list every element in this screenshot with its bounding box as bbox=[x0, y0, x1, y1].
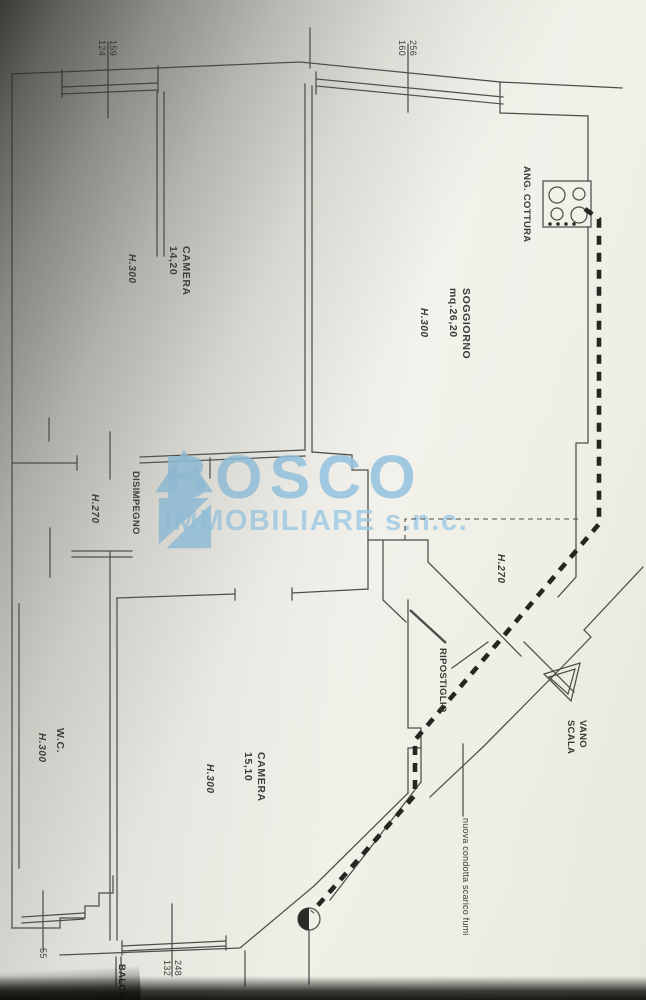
dimension-value: 248 bbox=[172, 960, 183, 976]
room-label-disimpegno: DISIMPEGNO bbox=[129, 471, 141, 535]
room-label-balcone: BALCONE bbox=[115, 964, 127, 1000]
dimension-value: 159 bbox=[107, 40, 118, 56]
height-label-soggiorno: H.300 bbox=[417, 308, 429, 338]
dimension-bottom: 248 132 bbox=[161, 960, 184, 976]
dimension-top-middle: 256 160 bbox=[396, 40, 419, 56]
room-area: 14,20 bbox=[166, 246, 179, 296]
dimension-top-left: 159 124 bbox=[96, 40, 119, 56]
dimension-bottom-left: 55 bbox=[37, 948, 48, 959]
height-label-disimpegno: H.270 bbox=[88, 494, 100, 524]
room-area: 15,10 bbox=[241, 752, 254, 802]
room-label-ripostiglio: RIPOSTIGLIO bbox=[436, 648, 448, 713]
floorplan-photo: BOSCO IMMOBILIARE s.n.c. CAMERA 14,20 H.… bbox=[0, 0, 646, 1000]
dimension-value: 160 bbox=[396, 40, 407, 56]
room-label-vano-scala: VANO SCALA bbox=[565, 720, 588, 754]
room-name: VANO bbox=[576, 720, 588, 754]
flue-note: nuova condotta scarico fumi bbox=[460, 818, 471, 935]
ceiling-height-dashed-line bbox=[405, 519, 578, 540]
room-label-ang-cottura: ANG. COTTURA bbox=[520, 166, 532, 242]
room-name: SCALA bbox=[565, 720, 577, 754]
room-name: CAMERA bbox=[179, 246, 192, 296]
height-label-camera2: H.300 bbox=[203, 764, 215, 794]
height-label-ripostiglio: H.270 bbox=[494, 554, 506, 584]
room-name: SOGGIORNO bbox=[459, 288, 472, 359]
room-label-soggiorno: SOGGIORNO mq.26,20 bbox=[446, 288, 472, 359]
height-label-wc: H.300 bbox=[35, 733, 47, 763]
dimension-value: 256 bbox=[407, 40, 418, 56]
height-label-camera1: H.300 bbox=[125, 254, 137, 284]
room-label-camera1: CAMERA 14,20 bbox=[166, 246, 192, 296]
dimension-value: 124 bbox=[96, 40, 107, 56]
room-label-wc: W.C. bbox=[53, 728, 66, 753]
dimension-value: 132 bbox=[161, 960, 172, 976]
room-label-camera2: CAMERA 15,10 bbox=[241, 752, 267, 802]
room-area: mq.26,20 bbox=[446, 288, 459, 359]
room-name: CAMERA bbox=[254, 752, 267, 802]
